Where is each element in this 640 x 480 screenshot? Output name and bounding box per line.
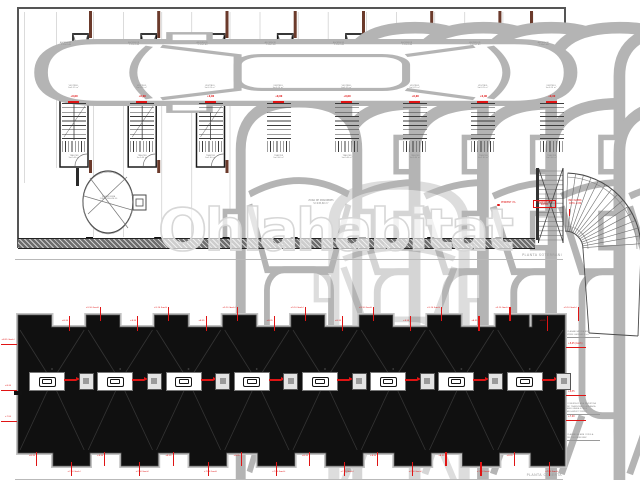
skylight-icon bbox=[175, 377, 192, 387]
vent-arrow-line bbox=[269, 379, 281, 381]
landing-level-label: +0,00 bbox=[543, 96, 561, 99]
ramp-note: PENDENT 4% bbox=[501, 202, 523, 205]
dimension-label: +8,35 bbox=[121, 320, 136, 322]
text-line: +9,10 (bach) bbox=[492, 307, 508, 309]
dimension-label: +9,10 (bach) bbox=[356, 307, 372, 309]
annotation-text: COBERTA PLANA INVERTIDANO TRANSITABLE AC… bbox=[567, 403, 600, 415]
dimension-label: +8,35 bbox=[531, 320, 546, 322]
vent-arrow-line bbox=[405, 379, 417, 381]
landing-level-label: +0,00 bbox=[406, 96, 424, 99]
text-line: S=2,40 m² bbox=[336, 157, 358, 159]
landing-note: VESTÍBULS=3,25 m² bbox=[131, 85, 152, 90]
dimension-tick bbox=[478, 316, 479, 331]
text-line: +8,35 bbox=[225, 455, 240, 457]
stair-lower-flight bbox=[540, 141, 564, 152]
stair-lower-flight bbox=[335, 141, 359, 152]
skylight bbox=[370, 372, 406, 391]
turntable-label: PLATAFORMAGIRATÒRIA Ø4,50 bbox=[95, 196, 122, 201]
text-line: +9,10 (bach) bbox=[288, 307, 304, 309]
dimension-tick bbox=[566, 347, 586, 348]
dimension-tick bbox=[69, 316, 70, 331]
roof-left-mark bbox=[14, 391, 22, 395]
text-line: +7,90 bbox=[0, 416, 16, 418]
dimension-tick bbox=[100, 307, 101, 321]
stair-flight bbox=[130, 103, 154, 139]
text-line: RAMPA bbox=[535, 204, 555, 207]
annotation-text: CLARABOIA FIXA AMBVIDRE LAMINAR 4+4 bbox=[567, 331, 600, 338]
elevator-note: ASCENSOR1,10x1,40 bbox=[52, 42, 71, 47]
skylight-icon-inner bbox=[315, 379, 325, 384]
text-line: +7,90 (bach) bbox=[199, 471, 223, 473]
text-line: +8,35 bbox=[20, 455, 35, 457]
skylight-icon bbox=[312, 377, 329, 387]
text-line: S=3,25 m² bbox=[63, 87, 84, 89]
text-line: 1,10x1,40 bbox=[325, 44, 344, 46]
dimension-label: +8,35 bbox=[225, 455, 240, 457]
skylight bbox=[97, 372, 133, 391]
chimney-box bbox=[488, 373, 503, 390]
dimension-label: +8,35 bbox=[361, 455, 376, 457]
store-note: TRASTERS=2,40 m² bbox=[63, 155, 85, 160]
dimension-tick bbox=[1, 421, 17, 422]
landing-level-label: +0,00 bbox=[65, 96, 83, 99]
skylight-icon bbox=[243, 377, 260, 387]
landing-note: VESTÍBULS=3,25 m² bbox=[336, 85, 357, 90]
landing-note: VESTÍBULS=3,25 m² bbox=[268, 85, 289, 90]
text-line: S=2,40 m² bbox=[404, 157, 426, 159]
stair-lower-flight bbox=[471, 141, 495, 152]
vent-arrow-line bbox=[542, 379, 554, 381]
dimension-label: +7,90 bbox=[0, 416, 16, 418]
text-line: S=3,25 m² bbox=[268, 87, 289, 89]
dimension-label: +8,35 bbox=[568, 391, 592, 394]
skylight bbox=[438, 372, 474, 391]
stair-flight bbox=[335, 103, 359, 139]
stair-flight bbox=[267, 103, 291, 139]
dimension-label: +7,90 (bach) bbox=[199, 471, 223, 473]
text-line: +8,35 bbox=[568, 391, 592, 394]
chimney-box bbox=[147, 373, 162, 390]
text-line: +9,10 (bach) bbox=[561, 307, 577, 309]
annotation-overlay: PLANTA SOTERRANI PLANTA COBERTA ASCENSOR… bbox=[0, 0, 640, 480]
dimension-label: +8,35 bbox=[498, 455, 513, 457]
garage-bottom-wall bbox=[18, 238, 535, 249]
text-line: 1,10x1,40 bbox=[52, 44, 71, 46]
text-line: +0,00 bbox=[406, 96, 424, 99]
text-line: +9,10 (bach) bbox=[424, 307, 440, 309]
dimension-label: +7,90 (bach) bbox=[130, 471, 154, 473]
text-line: +0,00 bbox=[338, 96, 356, 99]
dimension-tick bbox=[509, 307, 510, 321]
store-note: TRASTERS=2,40 m² bbox=[268, 155, 290, 160]
ramp-note-dot bbox=[497, 204, 500, 207]
text-line: +8,35 bbox=[258, 320, 273, 322]
store-note: TRASTERS=2,40 m² bbox=[541, 155, 563, 160]
stair-lower-flight bbox=[130, 141, 154, 152]
dimension-tick bbox=[410, 316, 411, 331]
text-line: +8,35 bbox=[88, 455, 103, 457]
skylight-icon-inner bbox=[383, 379, 393, 384]
dimension-tick bbox=[441, 307, 442, 321]
text-line: +8,35 bbox=[326, 320, 341, 322]
text-line: S=3,25 m² bbox=[200, 87, 221, 89]
plan-title-coberta: PLANTA COBERTA bbox=[440, 473, 562, 477]
skylight bbox=[507, 372, 543, 391]
text-line: +8,95 (bach) bbox=[568, 343, 592, 346]
stair-flight bbox=[540, 103, 564, 139]
skylight-icon bbox=[39, 377, 56, 387]
dimension-label: +8,35 bbox=[258, 320, 273, 322]
text-line: +0,00 bbox=[474, 96, 492, 99]
skylight bbox=[302, 372, 338, 391]
text-line: COTA -2,80 bbox=[564, 203, 586, 206]
landing-note: VESTÍBULS=3,25 m² bbox=[472, 85, 493, 90]
text-line: +8,35 bbox=[429, 455, 444, 457]
dimension-label: +7,90 (bach) bbox=[267, 471, 291, 473]
chimney-inner bbox=[220, 378, 226, 384]
text-line: +7,90 (bach) bbox=[335, 471, 359, 473]
dimension-label: +8,35 bbox=[326, 320, 341, 322]
text-line: AÏLLAMENT TÈRMIC bbox=[567, 411, 600, 414]
dimension-tick bbox=[137, 316, 138, 331]
landing-level-label: +0,00 bbox=[133, 96, 151, 99]
store-note: TRASTERS=2,40 m² bbox=[336, 155, 358, 160]
dimension-label: +7,90 (bach) bbox=[540, 471, 564, 473]
text-line: VIDRE LAMINAR 4+4 bbox=[567, 334, 600, 337]
vent-arrow-line bbox=[473, 379, 485, 381]
skylight-icon-inner bbox=[520, 379, 530, 384]
skylight-icon bbox=[380, 377, 397, 387]
dimension-tick bbox=[566, 395, 586, 396]
text-line: +8,35 bbox=[498, 455, 513, 457]
skylight bbox=[29, 372, 65, 391]
vent-arrow-line bbox=[132, 379, 144, 381]
landing-note: VESTÍBULS=3,25 m² bbox=[63, 85, 84, 90]
dimension-tick bbox=[104, 452, 105, 466]
stair-flight bbox=[62, 103, 86, 139]
annotation-text: CLARABOIA AMB CÚPULADE POLICARBONAT bbox=[567, 434, 600, 441]
chimney-box bbox=[556, 373, 571, 390]
garage-title-line bbox=[15, 259, 563, 260]
store-note: TRASTERS=2,40 m² bbox=[404, 155, 426, 160]
chimney-box bbox=[283, 373, 298, 390]
store-note: TRASTERS=2,40 m² bbox=[200, 155, 222, 160]
text-line: 1,10x1,40 bbox=[189, 44, 208, 46]
text-line: +0,00 bbox=[65, 96, 83, 99]
text-line: S=2,40 m² bbox=[268, 157, 290, 159]
landing-level-label: +0,00 bbox=[474, 96, 492, 99]
dimension-tick bbox=[566, 420, 586, 421]
dimension-label: +9,10 (bach) bbox=[288, 307, 304, 309]
dimension-label: +9,10 (bach) bbox=[151, 307, 167, 309]
dimension-label: +8,95 (bach) bbox=[568, 343, 592, 346]
vent-arrow-line bbox=[64, 379, 76, 381]
text-line: 1,10x1,40 bbox=[461, 44, 480, 46]
chimney-box bbox=[79, 373, 94, 390]
text-line: +7,90 (bach) bbox=[471, 471, 495, 473]
text-line: +9,10 (bach) bbox=[83, 307, 99, 309]
skylight-icon-inner bbox=[42, 379, 52, 384]
elevator-note: ASCENSOR1,10x1,40 bbox=[393, 42, 412, 47]
chimney-box bbox=[420, 373, 435, 390]
text-line: S=3,25 m² bbox=[541, 87, 562, 89]
text-line: DE POLICARBONAT bbox=[567, 437, 600, 440]
skylight-icon-inner bbox=[179, 379, 189, 384]
dimension-tick bbox=[274, 316, 275, 331]
text-line: +0,00 bbox=[202, 96, 220, 99]
dimension-tick bbox=[139, 462, 140, 476]
text-line: +8,35 bbox=[157, 455, 172, 457]
dimension-tick bbox=[342, 316, 343, 331]
text-line: S=2,40 m² bbox=[472, 157, 494, 159]
text-line: S=2,40 m² bbox=[131, 157, 153, 159]
store-note: TRASTERS=2,40 m² bbox=[131, 155, 153, 160]
dimension-label: +8,35 bbox=[190, 320, 205, 322]
landing-level-label: +0,00 bbox=[338, 96, 356, 99]
text-line: +7,90 (bach) bbox=[267, 471, 291, 473]
text-line: S=3,25 m² bbox=[472, 87, 493, 89]
stair-lower-flight bbox=[62, 141, 86, 152]
dimension-label: +8,35 bbox=[53, 320, 68, 322]
dimension-label: +8,35 bbox=[157, 455, 172, 457]
plan-title-soterrani: PLANTA SOTERRANI bbox=[440, 253, 562, 257]
text-line: S=3,25 m² bbox=[131, 87, 152, 89]
text-line: GIRATÒRIA Ø4,50 bbox=[95, 198, 122, 200]
skylight-icon-inner bbox=[451, 379, 461, 384]
text-line: +0,00 bbox=[133, 96, 151, 99]
dimension-tick bbox=[549, 462, 550, 476]
dimension-tick bbox=[344, 462, 345, 476]
vent-arrow-line bbox=[201, 379, 213, 381]
stair-lower-flight bbox=[403, 141, 427, 152]
dimension-tick bbox=[237, 307, 238, 321]
text-line: +7,90 (bach) bbox=[62, 471, 86, 473]
text-line: +8,35 bbox=[190, 320, 205, 322]
stair-lower-flight bbox=[199, 141, 223, 152]
dimension-tick bbox=[1, 344, 17, 345]
text-line: +8,35 bbox=[394, 320, 409, 322]
landing-note: VESTÍBULS=3,25 m² bbox=[404, 85, 425, 90]
text-line: +8,35 bbox=[0, 385, 16, 387]
dimension-tick bbox=[168, 307, 169, 321]
dimension-tick bbox=[309, 452, 310, 466]
elevator-note: ASCENSOR1,10x1,40 bbox=[461, 42, 480, 47]
elevator-note: ASCENSOR1,10x1,40 bbox=[120, 42, 139, 47]
text-line: +8,35 bbox=[121, 320, 136, 322]
chimney-inner bbox=[492, 378, 498, 384]
text-line: +9,10 (bach) bbox=[356, 307, 372, 309]
dimension-tick bbox=[208, 462, 209, 476]
dimension-tick bbox=[412, 462, 413, 476]
dimension-tick bbox=[305, 307, 306, 321]
dimension-tick bbox=[71, 462, 72, 476]
skylight-icon-inner bbox=[247, 379, 257, 384]
dimension-tick bbox=[36, 452, 37, 466]
dimension-label: +7,90 (bach) bbox=[335, 471, 359, 473]
chimney-inner bbox=[561, 378, 567, 384]
dimension-tick bbox=[241, 452, 242, 466]
dimension-label: +8,35 bbox=[462, 320, 477, 322]
text-line: 1,10x1,40 bbox=[530, 44, 549, 46]
stair-flight bbox=[199, 103, 223, 139]
skylight-icon-inner bbox=[110, 379, 120, 384]
dimension-label: +7,90 (bach) bbox=[471, 471, 495, 473]
dimension-tick bbox=[173, 452, 174, 466]
text-line: S=2,40 m² bbox=[200, 157, 222, 159]
dimension-tick bbox=[206, 316, 207, 331]
skylight bbox=[234, 372, 270, 391]
text-line: +7,90 bbox=[568, 416, 592, 419]
landing-note: VESTÍBULS=3,25 m² bbox=[541, 85, 562, 90]
text-line: +8,35 bbox=[53, 320, 68, 322]
dimension-label: +7,90 (bach) bbox=[62, 471, 86, 473]
architectural-drawing-sheet: PLANTA SOTERRANI PLANTA COBERTA ASCENSOR… bbox=[0, 0, 640, 480]
elevator-note: ASCENSOR1,10x1,40 bbox=[257, 42, 276, 47]
text-line: +9,10 (bach) bbox=[151, 307, 167, 309]
dimension-label: +8,35 bbox=[88, 455, 103, 457]
chimney-inner bbox=[356, 378, 362, 384]
text-line: 1,10x1,40 bbox=[120, 44, 139, 46]
chimney-inner bbox=[424, 378, 430, 384]
dimension-tick bbox=[445, 452, 446, 466]
landing-level-label: +0,00 bbox=[202, 96, 220, 99]
ramp-note: INICI RAMPACOTA -2,80 bbox=[564, 200, 586, 205]
dimension-tick bbox=[547, 316, 548, 331]
store-note: TRASTERS=2,40 m² bbox=[472, 155, 494, 160]
landing-note: VESTÍBULS=3,25 m² bbox=[200, 85, 221, 90]
stair-flight bbox=[471, 103, 495, 139]
dimension-label: +9,10 (bach) bbox=[220, 307, 236, 309]
chimney-inner bbox=[288, 378, 294, 384]
dimension-label: +9,10 (bach) bbox=[561, 307, 577, 309]
text-line: +7,90 (bach) bbox=[130, 471, 154, 473]
chimney-inner bbox=[83, 378, 89, 384]
skylight bbox=[166, 372, 202, 391]
dimension-label: +7,90 bbox=[568, 416, 592, 419]
text-line: PENDENT 4% bbox=[501, 202, 523, 205]
ramp-note-tick bbox=[569, 209, 570, 216]
dimension-label: +7,90 (bach) bbox=[403, 471, 427, 473]
dimension-tick bbox=[373, 307, 374, 321]
text-line: +0,00 bbox=[543, 96, 561, 99]
text-line: +8,35 bbox=[361, 455, 376, 457]
text-line: +7,90 (bach) bbox=[403, 471, 427, 473]
dimension-tick bbox=[480, 462, 481, 476]
dimension-label: +9,10 (bach) bbox=[424, 307, 440, 309]
text-line: S=2,40 m² bbox=[63, 157, 85, 159]
vent-arrow-line bbox=[337, 379, 349, 381]
text-line: S=2,40 m² bbox=[541, 157, 563, 159]
stair-lower-flight bbox=[267, 141, 291, 152]
dimension-tick bbox=[276, 462, 277, 476]
chimney-box bbox=[352, 373, 367, 390]
dimension-label: +8,35 bbox=[0, 385, 16, 387]
dimension-label: +8,35 bbox=[394, 320, 409, 322]
elevator-note: ASCENSOR1,10x1,40 bbox=[530, 42, 549, 47]
text-line: S=245,60 m² bbox=[298, 203, 344, 206]
elevator-note: ASCENSOR1,10x1,40 bbox=[189, 42, 208, 47]
ramp-note: PENDENT 20%RAMPA bbox=[533, 200, 556, 208]
dimension-label: +8,35 bbox=[20, 455, 35, 457]
elevator-note: ASCENSOR1,10x1,40 bbox=[325, 42, 344, 47]
text-line: S=3,25 m² bbox=[404, 87, 425, 89]
dimension-label: +8,35 bbox=[429, 455, 444, 457]
dimension-label: +9,10 (bach) bbox=[492, 307, 508, 309]
text-line: +8,35 bbox=[462, 320, 477, 322]
skylight-icon bbox=[107, 377, 124, 387]
roof-title-line bbox=[15, 479, 563, 480]
dimension-label: +9,10 (bach) bbox=[83, 307, 99, 309]
text-line: +0,00 bbox=[270, 96, 288, 99]
dimension-tick bbox=[514, 452, 515, 466]
skylight-icon bbox=[516, 377, 533, 387]
dimension-tick bbox=[377, 452, 378, 466]
skylight-icon bbox=[448, 377, 465, 387]
dimension-label: +8,35 (bach) bbox=[0, 339, 16, 341]
maneuver-area-label: ZONA DE MANIOBRESS=245,60 m² bbox=[298, 200, 344, 206]
text-line: 1,10x1,40 bbox=[257, 44, 276, 46]
text-line: S=3,25 m² bbox=[336, 87, 357, 89]
chimney-inner bbox=[151, 378, 157, 384]
dimension-label: +8,35 bbox=[293, 455, 308, 457]
text-line: +7,90 (bach) bbox=[540, 471, 564, 473]
text-line: +8,35 bbox=[293, 455, 308, 457]
text-line: +8,35 bbox=[531, 320, 546, 322]
stair-flight bbox=[403, 103, 427, 139]
landing-level-label: +0,00 bbox=[270, 96, 288, 99]
text-line: 1,10x1,40 bbox=[393, 44, 412, 46]
text-line: +9,10 (bach) bbox=[220, 307, 236, 309]
text-line: +8,35 (bach) bbox=[0, 339, 16, 341]
dimension-tick bbox=[578, 307, 579, 321]
chimney-box bbox=[215, 373, 230, 390]
